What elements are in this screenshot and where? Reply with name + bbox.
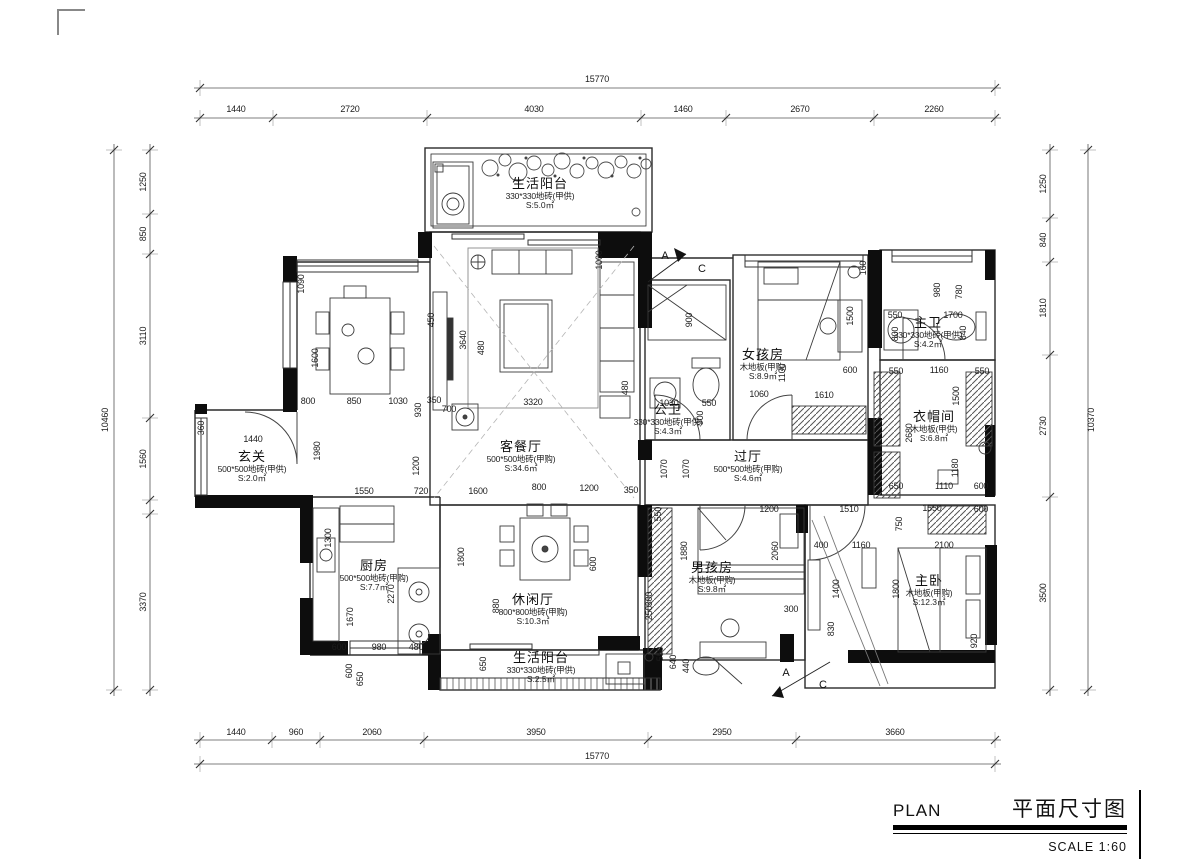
dimension-label: 780: [954, 285, 964, 300]
washing-machine: [433, 162, 473, 228]
dimension-label: 160: [858, 261, 868, 276]
dimension-label: 550: [888, 310, 903, 320]
room-name-label: 衣帽间: [913, 409, 955, 424]
room-name-label: 男孩房: [691, 560, 733, 575]
dimension-label: 450: [426, 313, 436, 328]
room-name-label: 过厅: [734, 449, 762, 464]
dimension-label: 720: [414, 486, 429, 496]
section-marker-label: A: [782, 667, 790, 679]
title-thin-rule: [893, 833, 1127, 834]
dimension-label: 600: [588, 557, 598, 572]
dimension-label: 550: [653, 507, 663, 522]
dimension-label: 1800: [891, 579, 901, 598]
dimension-label: 15770: [585, 74, 609, 84]
room-name-label: 主卫: [914, 315, 942, 330]
room-area-label: S:34.6㎡: [504, 463, 538, 473]
dimension-label: 4030: [524, 104, 543, 114]
dimension-label: 980: [372, 642, 387, 652]
dimension-label: 1250: [138, 172, 148, 191]
dimension-label: 300: [784, 604, 799, 614]
room-area-label: S:4.3㎡: [654, 426, 683, 436]
floorplan-sheet: 1577014402720403014602670226014409602060…: [0, 0, 1200, 859]
room-area-label: S:2.0㎡: [238, 473, 267, 483]
dimension-label: 1200: [411, 456, 421, 475]
dimension-label: 550: [655, 647, 665, 662]
dimension-label: 3500: [1038, 583, 1048, 602]
dimension-label: 250: [644, 606, 654, 621]
room-name-label: 主卧: [915, 573, 943, 588]
dimension-label: 350: [624, 485, 639, 495]
dimension-label: 1060: [749, 389, 768, 399]
dimension-label: 830: [826, 622, 836, 637]
dimension-label: 3950: [526, 727, 545, 737]
dimension-label: 1460: [673, 104, 692, 114]
dimension-label: 1090: [296, 274, 306, 293]
dimension-label: 440: [681, 659, 691, 674]
dimension-label: 700: [442, 404, 457, 414]
dimension-label: 1510: [839, 504, 858, 514]
dimension-label: 600: [974, 504, 989, 514]
room-area-label: S:2.5㎡: [527, 674, 556, 684]
plan-title-en: PLAN: [893, 801, 941, 821]
title-thick-rule: [893, 825, 1127, 830]
dimension-label: 1160: [930, 365, 949, 375]
room-name-label: 客餐厅: [500, 439, 542, 454]
dimension-label: 2060: [362, 727, 381, 737]
dimension-label: 3320: [523, 397, 542, 407]
dimension-label: 1180: [950, 459, 960, 478]
dimension-label: 600: [843, 365, 858, 375]
dimension-label: 930: [413, 403, 423, 418]
dimension-label: 1250: [1038, 174, 1048, 193]
dimension-label: 650: [478, 657, 488, 672]
dimension-label: 850: [347, 396, 362, 406]
dimension-label: 800: [301, 396, 316, 406]
frame-right-rule: [1139, 790, 1141, 859]
room-area-label: S:6.8㎡: [920, 433, 949, 443]
dining-table: [316, 286, 404, 394]
room-area-label: S:4.6㎡: [734, 473, 763, 483]
dimension-label: 2730: [1038, 416, 1048, 435]
guest-bath-fixtures: [648, 285, 726, 408]
room-area-label: S:8.9㎡: [749, 371, 778, 381]
sofa-set: [468, 248, 634, 418]
room-area-label: S:12.3㎡: [912, 597, 946, 607]
floorplan-drawing: 1577014402720403014602670226014409602060…: [0, 0, 1200, 859]
dimension-label: 2950: [712, 727, 731, 737]
dimension-label: 3640: [458, 330, 468, 349]
room-area-label: S:4.2㎡: [914, 339, 943, 349]
dimension-label: 920: [969, 634, 979, 649]
room-name-label: 玄关: [238, 449, 266, 464]
dimension-label: 1670: [345, 607, 355, 626]
dimension-label: 3370: [138, 592, 148, 611]
dimension-label: 1440: [243, 434, 262, 444]
boys-wardrobe: [648, 508, 672, 654]
dimension-label: 2670: [790, 104, 809, 114]
room-area-label: S:9.8㎡: [698, 584, 727, 594]
dimension-label: 1200: [579, 483, 598, 493]
dimension-label: 15770: [585, 751, 609, 761]
girls-wardrobe: [792, 406, 866, 434]
dimension-label: 900: [684, 313, 694, 328]
dimension-label: 1550: [922, 503, 941, 513]
dimension-label: 1500: [951, 386, 961, 405]
room-name-label: 公卫: [654, 402, 682, 417]
dimension-label: 1110: [935, 481, 953, 491]
dimension-label: 350: [427, 395, 442, 405]
dimension-label: 800: [532, 482, 547, 492]
dimension-label: 1800: [456, 547, 466, 566]
tv-cabinet: [433, 292, 453, 410]
dimension-label: 1440: [226, 104, 245, 114]
dimension-label: 1980: [312, 441, 322, 460]
room-name-label: 生活阳台: [512, 176, 568, 191]
plan-title-zh: 平面尺寸图: [1012, 793, 1127, 823]
dimension-label: 2100: [934, 540, 953, 550]
dimension-label: 360: [196, 421, 206, 436]
dimension-label: 550: [702, 398, 717, 408]
dimension-label: 300: [644, 592, 654, 607]
dimension-label: 550: [889, 366, 904, 376]
dimension-label: 480: [620, 381, 630, 396]
dimension-label: 2260: [924, 104, 943, 114]
dimension-label: 550: [975, 366, 990, 376]
scale-label: SCALE 1:60: [893, 840, 1127, 854]
room-area-label: S:7.7㎡: [360, 582, 389, 592]
dimension-label: 1200: [759, 504, 778, 514]
section-marker-label: A: [661, 250, 669, 262]
dimension-label: 480: [476, 341, 486, 356]
room-name-label: 生活阳台: [513, 650, 569, 665]
room-name-label: 休闲厅: [512, 592, 554, 607]
dimension-label: 1070: [681, 459, 691, 478]
dimension-label: 850: [138, 227, 148, 242]
dimension-label: 980: [932, 283, 942, 298]
dimension-label: 600: [332, 642, 347, 652]
dimension-label: 1700: [943, 310, 962, 320]
room-name-label: 厨房: [360, 558, 388, 573]
dimension-label: 2720: [340, 104, 359, 114]
dimension-label: 1500: [845, 306, 855, 325]
dimension-label: 10370: [1086, 408, 1096, 432]
section-marker-label: C: [819, 679, 827, 691]
dimension-label: 1880: [679, 541, 689, 560]
dimension-label: 1300: [323, 528, 333, 547]
room-name-label: 女孩房: [742, 347, 784, 362]
room-area-label: S:5.0㎡: [526, 200, 555, 210]
dimension-label: 1600: [468, 486, 487, 496]
dimension-label: 600: [344, 664, 354, 679]
section-marker-label: C: [698, 263, 706, 275]
leisure-table: [500, 504, 588, 580]
title-block: PLAN 平面尺寸图 SCALE 1:60: [893, 793, 1133, 854]
dimension-label: 2060: [770, 541, 780, 560]
dimension-label: 1550: [354, 486, 373, 496]
dimension-label: 1610: [814, 390, 833, 400]
dimension-label: 400: [814, 540, 829, 550]
dimension-label: 1160: [852, 540, 871, 550]
dimension-label: 1560: [138, 449, 148, 468]
dimension-label: 650: [889, 481, 904, 491]
dimension-label: 640: [668, 655, 678, 670]
dimension-label: 1000: [594, 250, 604, 269]
dimension-label: 3660: [885, 727, 904, 737]
dimension-label: 960: [289, 727, 304, 737]
dimension-label: 10460: [100, 408, 110, 432]
dimension-label: 1030: [388, 396, 407, 406]
dimension-label: 1440: [226, 727, 245, 737]
dimension-label: 3110: [138, 327, 148, 346]
dimension-label: 1070: [659, 459, 669, 478]
dimension-label: 650: [355, 672, 365, 687]
dimension-label: 1600: [310, 348, 320, 367]
dimension-label: 750: [894, 517, 904, 532]
dimension-label: 600: [974, 481, 989, 491]
dimension-label: 840: [1038, 233, 1048, 248]
dimension-label: 1400: [831, 579, 841, 598]
dimension-label: 480: [409, 642, 424, 652]
dimension-label: 1810: [1038, 298, 1048, 317]
room-area-label: S:10.3㎡: [516, 616, 550, 626]
